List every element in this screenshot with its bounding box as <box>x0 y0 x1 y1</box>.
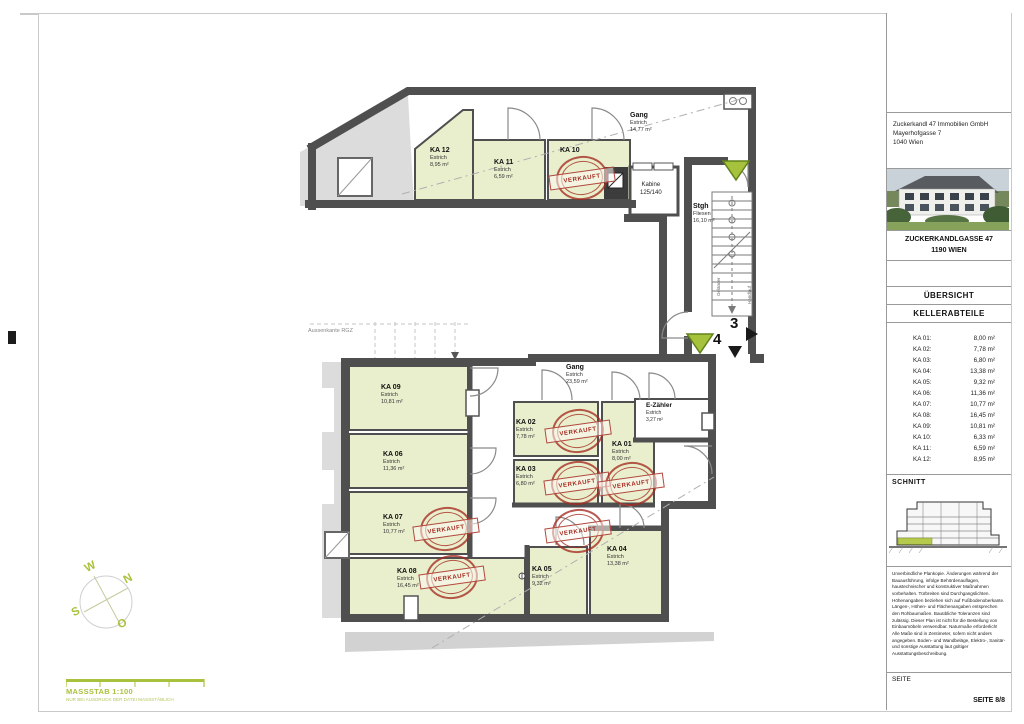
floorplan-drawing <box>0 0 1024 724</box>
room-area: 11,36 m² <box>383 466 404 473</box>
project-title: ZUCKERKANDLGASSE 47 1190 WIEN <box>887 231 1011 261</box>
plan-disclaimer: Unverbindliche Plankopie. Änderungen wäh… <box>887 567 1011 673</box>
ka-list-row: KA 07: 10,77 m² <box>887 399 1011 410</box>
room-label-ka01: KA 01 Estrich 8,00 m² <box>612 440 632 463</box>
room-floor: Estrich <box>383 459 404 466</box>
room-floor: Estrich <box>516 474 536 481</box>
floor-drain-icon <box>518 572 526 580</box>
room-label-ka10: KA 10 <box>560 146 580 155</box>
verkauft-stamp-ka08: VERKAUFT <box>423 552 481 603</box>
room-label-ka08: KA 08 Estrich 16,45 m² <box>397 567 419 590</box>
gelaender-label: Geländer <box>716 277 721 296</box>
compass-rose: W N S O <box>68 560 144 640</box>
verkauft-stamp-ka07: VERKAUFT <box>417 504 475 555</box>
project-name: ZUCKERKANDLGASSE 47 <box>905 235 993 246</box>
footer-section: SEITE SEITE 8/8 <box>887 673 1011 710</box>
title-block-empty-mid <box>887 261 1011 287</box>
ka-list-row: KA 06: 11,36 m² <box>887 388 1011 399</box>
room-floor: Estrich <box>532 574 552 581</box>
room-name: KA 11 <box>494 158 513 167</box>
aussenkante-label: Aussenkante RGZ <box>308 328 353 334</box>
room-label-ka03: KA 03 Estrich 6,80 m² <box>516 465 536 488</box>
ka-list-row: KA 11: 6,59 m² <box>887 443 1011 454</box>
room-floor: Estrich <box>381 392 403 399</box>
room-label-gang-ug: Gang Estrich 23,59 m² <box>566 363 588 386</box>
room-floor: Estrich <box>607 554 629 561</box>
handlauf-label: Handlauf <box>747 286 752 304</box>
room-name: KA 02 <box>516 418 536 427</box>
ka-label: KA 03: <box>913 355 932 366</box>
ka-list-row: KA 09: 10,81 m² <box>887 421 1011 432</box>
schnitt-section: SCHNITT <box>887 475 1011 567</box>
ka-label: KA 12: <box>913 454 932 465</box>
compass-graphic <box>68 560 144 640</box>
title-block-empty-top <box>887 13 1011 113</box>
ka-area-list: KA 01: 8,00 m² KA 02: 7,78 m² KA 03: 6,8… <box>887 323 1011 475</box>
room-name: KA 12 <box>430 146 450 155</box>
ka-list-row: KA 10: 6,33 m² <box>887 432 1011 443</box>
ka-area: 6,80 m² <box>974 355 995 366</box>
ka-area: 10,81 m² <box>970 421 995 432</box>
verkauft-stamp-ka04: VERKAUFT <box>549 506 607 557</box>
ka-label: KA 08: <box>913 410 932 421</box>
room-name: KA 08 <box>397 567 419 576</box>
room-label-ka05: KA 05 Estrich 9,32 m² <box>532 565 552 588</box>
room-area: 10,77 m² <box>383 529 405 536</box>
verkauft-stamp-ka02: VERKAUFT <box>549 406 607 457</box>
ka-area: 11,36 m² <box>971 388 995 399</box>
room-name: Kabine <box>640 182 662 190</box>
room-area: 9,32 m² <box>532 581 552 588</box>
ka-area: 8,00 m² <box>974 333 995 344</box>
footer-label: SEITE <box>892 676 911 683</box>
ka-list-row: KA 05: 9,32 m² <box>887 377 1011 388</box>
ka-label: KA 10: <box>913 432 932 443</box>
staircase <box>712 192 752 316</box>
room-label-stgh: Stgh Fliesen 16,10 m² <box>693 202 715 225</box>
scale-note: NUR BEI AUSDRUCK DER DATEI MASSSTÄBLICH <box>66 697 174 702</box>
room-label-ka11: KA 11 Estrich 6,59 m² <box>494 158 513 181</box>
ka-label: KA 11: <box>913 443 931 454</box>
plan-sheet: KA 12 Estrich 8,95 m² KA 11 Estrich 6,59… <box>0 0 1024 724</box>
ka-list-row: KA 01: 8,00 m² <box>887 333 1011 344</box>
room-floor: Estrich <box>383 522 405 529</box>
ka-list-row: KA 03: 6,80 m² <box>887 355 1011 366</box>
ka-area: 13,38 m² <box>970 366 995 377</box>
room-floor: Estrich <box>494 167 513 174</box>
footer-page-number: SEITE 8/8 <box>973 697 1005 704</box>
room-name: Gang <box>566 363 588 372</box>
wall-stub <box>750 354 764 363</box>
section-number-3: 3 <box>730 315 738 332</box>
project-city: 1190 WIEN <box>931 246 966 257</box>
ka-label: KA 04: <box>913 366 932 377</box>
ka-label: KA 05: <box>913 377 932 388</box>
room-area: 16,10 m² <box>693 218 715 225</box>
doc-subtitle: KELLERABTEILE <box>887 305 1011 323</box>
room-floor: Estrich <box>397 576 419 583</box>
scale-caption: MASSSTAB 1:100 <box>66 687 133 696</box>
section-number-4: 4 <box>713 331 721 348</box>
building-photo <box>887 169 1011 231</box>
room-area: 14,77 m² <box>630 127 652 134</box>
company-name: Zuckerkandl 47 Immobilien GmbH <box>893 120 1005 129</box>
ka-list-row: KA 02: 7,78 m² <box>887 344 1011 355</box>
company-city: 1040 Wien <box>893 138 1005 147</box>
title-block: Zuckerkandl 47 Immobilien GmbH Mayerhofg… <box>886 13 1011 710</box>
room-label-gang-og: Gang Estrich 14,77 m² <box>630 111 652 134</box>
room-area: 13,38 m² <box>607 561 629 568</box>
room-area: 16,45 m² <box>397 583 419 590</box>
room-label-ka09: KA 09 Estrich 10,81 m² <box>381 383 403 406</box>
room-area: 23,59 m² <box>566 379 588 386</box>
room-area: 10,81 m² <box>381 399 403 406</box>
ka-area: 6,59 m² <box>974 443 995 454</box>
room-floor: Estrich <box>430 155 450 162</box>
room-name: KA 06 <box>383 450 404 459</box>
room-name: KA 04 <box>607 545 629 554</box>
company-street: Mayerhofgasse 7 <box>893 129 1005 138</box>
ka-list-row: KA 04: 13,38 m² <box>887 366 1011 377</box>
room-name: KA 03 <box>516 465 536 474</box>
room-area: 3,27 m² <box>646 417 672 424</box>
room-label-ka07: KA 07 Estrich 10,77 m² <box>383 513 405 536</box>
room-floor: Estrich <box>566 372 588 379</box>
ka-label: KA 02: <box>913 344 932 355</box>
ka-area: 7,78 m² <box>974 344 995 355</box>
ka-label: KA 06: <box>913 388 932 399</box>
company-address: Zuckerkandl 47 Immobilien GmbH Mayerhofg… <box>887 113 1011 169</box>
room-label-ka02: KA 02 Estrich 7,78 m² <box>516 418 536 441</box>
room-area: 6,59 m² <box>494 174 513 181</box>
schnitt-label: SCHNITT <box>892 479 926 486</box>
room-label-ka04: KA 04 Estrich 13,38 m² <box>607 545 629 568</box>
room-label-ka06: KA 06 Estrich 11,36 m² <box>383 450 404 473</box>
ka-area: 8,95 m² <box>974 454 995 465</box>
room-label-kabine: Kabine 125/140 <box>640 182 662 198</box>
room-label-ezaehler: E-Zähler Estrich 3,27 m² <box>646 402 672 423</box>
ka-list-row: KA 12: 8,95 m² <box>887 454 1011 465</box>
ka-label: KA 07: <box>913 399 932 410</box>
room-floor: Estrich <box>630 120 652 127</box>
schnitt-drawing <box>889 491 1007 563</box>
ka-area: 16,45 m² <box>970 410 995 421</box>
room-label-ka12: KA 12 Estrich 8,95 m² <box>430 146 450 169</box>
room-area: 6,80 m² <box>516 481 536 488</box>
room-floor: Estrich <box>516 427 536 434</box>
room-name: KA 05 <box>532 565 552 574</box>
room-name: E-Zähler <box>646 402 672 410</box>
verkauft-stamp-ka01: VERKAUFT <box>602 459 660 510</box>
room-name: KA 09 <box>381 383 403 392</box>
room-area: 8,95 m² <box>430 162 450 169</box>
verkauft-stamp-ka10: VERKAUFT <box>553 153 611 204</box>
ka-list-row: KA 08: 16,45 m² <box>887 410 1011 421</box>
room-floor: Estrich <box>612 449 632 456</box>
ka-area: 10,77 m² <box>970 399 995 410</box>
room-name: Stgh <box>693 202 715 211</box>
ka-label: KA 09: <box>913 421 932 432</box>
room-name: Gang <box>630 111 652 120</box>
doc-title: ÜBERSICHT <box>887 287 1011 305</box>
room-area: 7,78 m² <box>516 434 536 441</box>
room-name: KA 07 <box>383 513 405 522</box>
room-name: KA 10 <box>560 146 580 155</box>
room-name: KA 01 <box>612 440 632 449</box>
room-floor: Fliesen <box>693 211 715 218</box>
ka-label: KA 01: <box>913 333 932 344</box>
building-photo-graphic <box>887 169 1009 230</box>
kabine-size: 125/140 <box>640 190 662 198</box>
ka-area: 9,32 m² <box>974 377 995 388</box>
ka-area: 6,33 m² <box>974 432 995 443</box>
